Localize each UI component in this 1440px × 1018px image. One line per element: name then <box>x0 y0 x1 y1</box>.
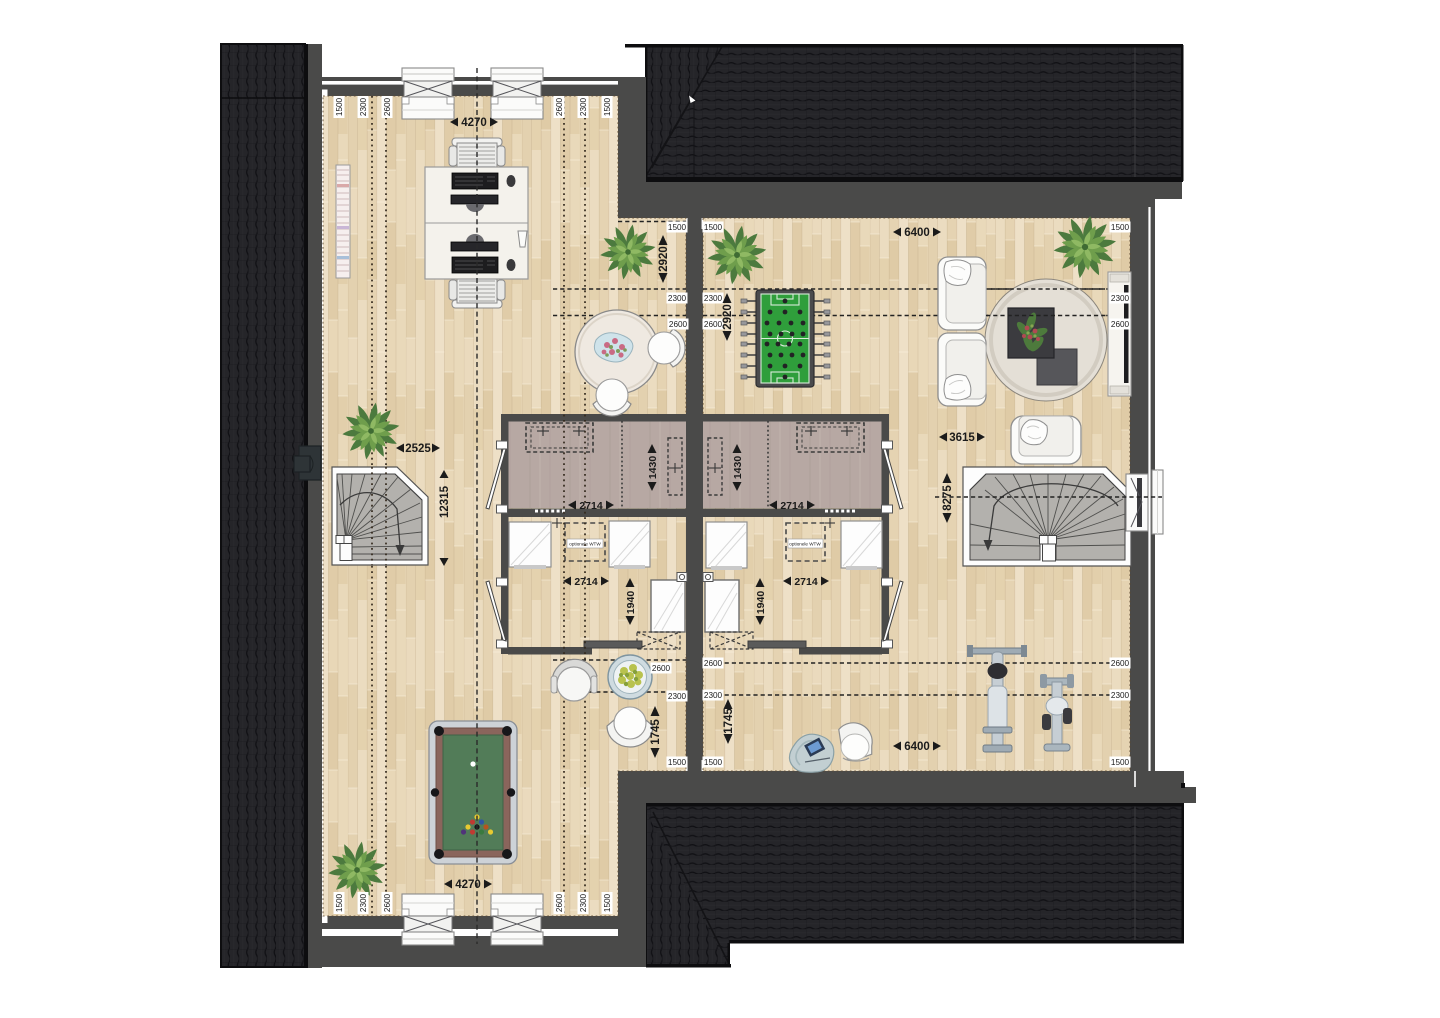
svg-text:1500: 1500 <box>704 758 723 767</box>
svg-text:2300: 2300 <box>1111 294 1130 303</box>
svg-text:2920: 2920 <box>658 246 670 272</box>
svg-text:1500: 1500 <box>603 97 612 116</box>
svg-text:2525: 2525 <box>405 443 431 455</box>
svg-text:1430: 1430 <box>647 456 659 480</box>
svg-text:2600: 2600 <box>555 893 564 912</box>
svg-text:1745: 1745 <box>650 719 662 745</box>
svg-text:4270: 4270 <box>455 879 481 891</box>
svg-text:2600: 2600 <box>383 893 392 912</box>
svg-text:1500: 1500 <box>704 223 723 232</box>
svg-text:2300: 2300 <box>579 97 588 116</box>
svg-text:2714: 2714 <box>780 500 804 512</box>
svg-text:1500: 1500 <box>335 893 344 912</box>
svg-text:2300: 2300 <box>704 294 723 303</box>
svg-text:1745: 1745 <box>723 708 735 734</box>
svg-text:2920: 2920 <box>722 304 734 330</box>
svg-text:2300: 2300 <box>579 893 588 912</box>
svg-text:3615: 3615 <box>949 432 975 444</box>
svg-text:8275: 8275 <box>942 485 954 511</box>
svg-text:2300: 2300 <box>668 692 687 701</box>
svg-text:1500: 1500 <box>603 893 612 912</box>
svg-text:2600: 2600 <box>704 659 723 668</box>
svg-text:2714: 2714 <box>579 500 603 512</box>
svg-text:2600: 2600 <box>1111 659 1130 668</box>
svg-text:1500: 1500 <box>668 758 687 767</box>
svg-text:1500: 1500 <box>335 97 344 116</box>
svg-text:2600: 2600 <box>555 97 564 116</box>
svg-text:2600: 2600 <box>704 320 723 329</box>
svg-text:6400: 6400 <box>904 227 930 239</box>
svg-text:2300: 2300 <box>1111 691 1130 700</box>
svg-text:2300: 2300 <box>668 294 687 303</box>
svg-text:1500: 1500 <box>1111 223 1130 232</box>
svg-text:12315: 12315 <box>439 485 451 518</box>
svg-text:2300: 2300 <box>704 691 723 700</box>
svg-text:2300: 2300 <box>359 97 368 116</box>
svg-text:6400: 6400 <box>904 741 930 753</box>
svg-text:1500: 1500 <box>1111 758 1130 767</box>
svg-text:1940: 1940 <box>755 591 767 615</box>
svg-text:2600: 2600 <box>652 664 671 673</box>
svg-text:2300: 2300 <box>359 893 368 912</box>
svg-text:optionele WTW: optionele WTW <box>789 542 821 547</box>
svg-text:1430: 1430 <box>732 456 744 480</box>
svg-text:1940: 1940 <box>625 591 637 615</box>
svg-text:2600: 2600 <box>383 97 392 116</box>
svg-text:2600: 2600 <box>669 320 688 329</box>
svg-text:2714: 2714 <box>574 576 598 588</box>
svg-text:2600: 2600 <box>1111 320 1130 329</box>
svg-text:4270: 4270 <box>461 117 487 129</box>
svg-text:1500: 1500 <box>668 223 687 232</box>
svg-text:2714: 2714 <box>794 576 818 588</box>
